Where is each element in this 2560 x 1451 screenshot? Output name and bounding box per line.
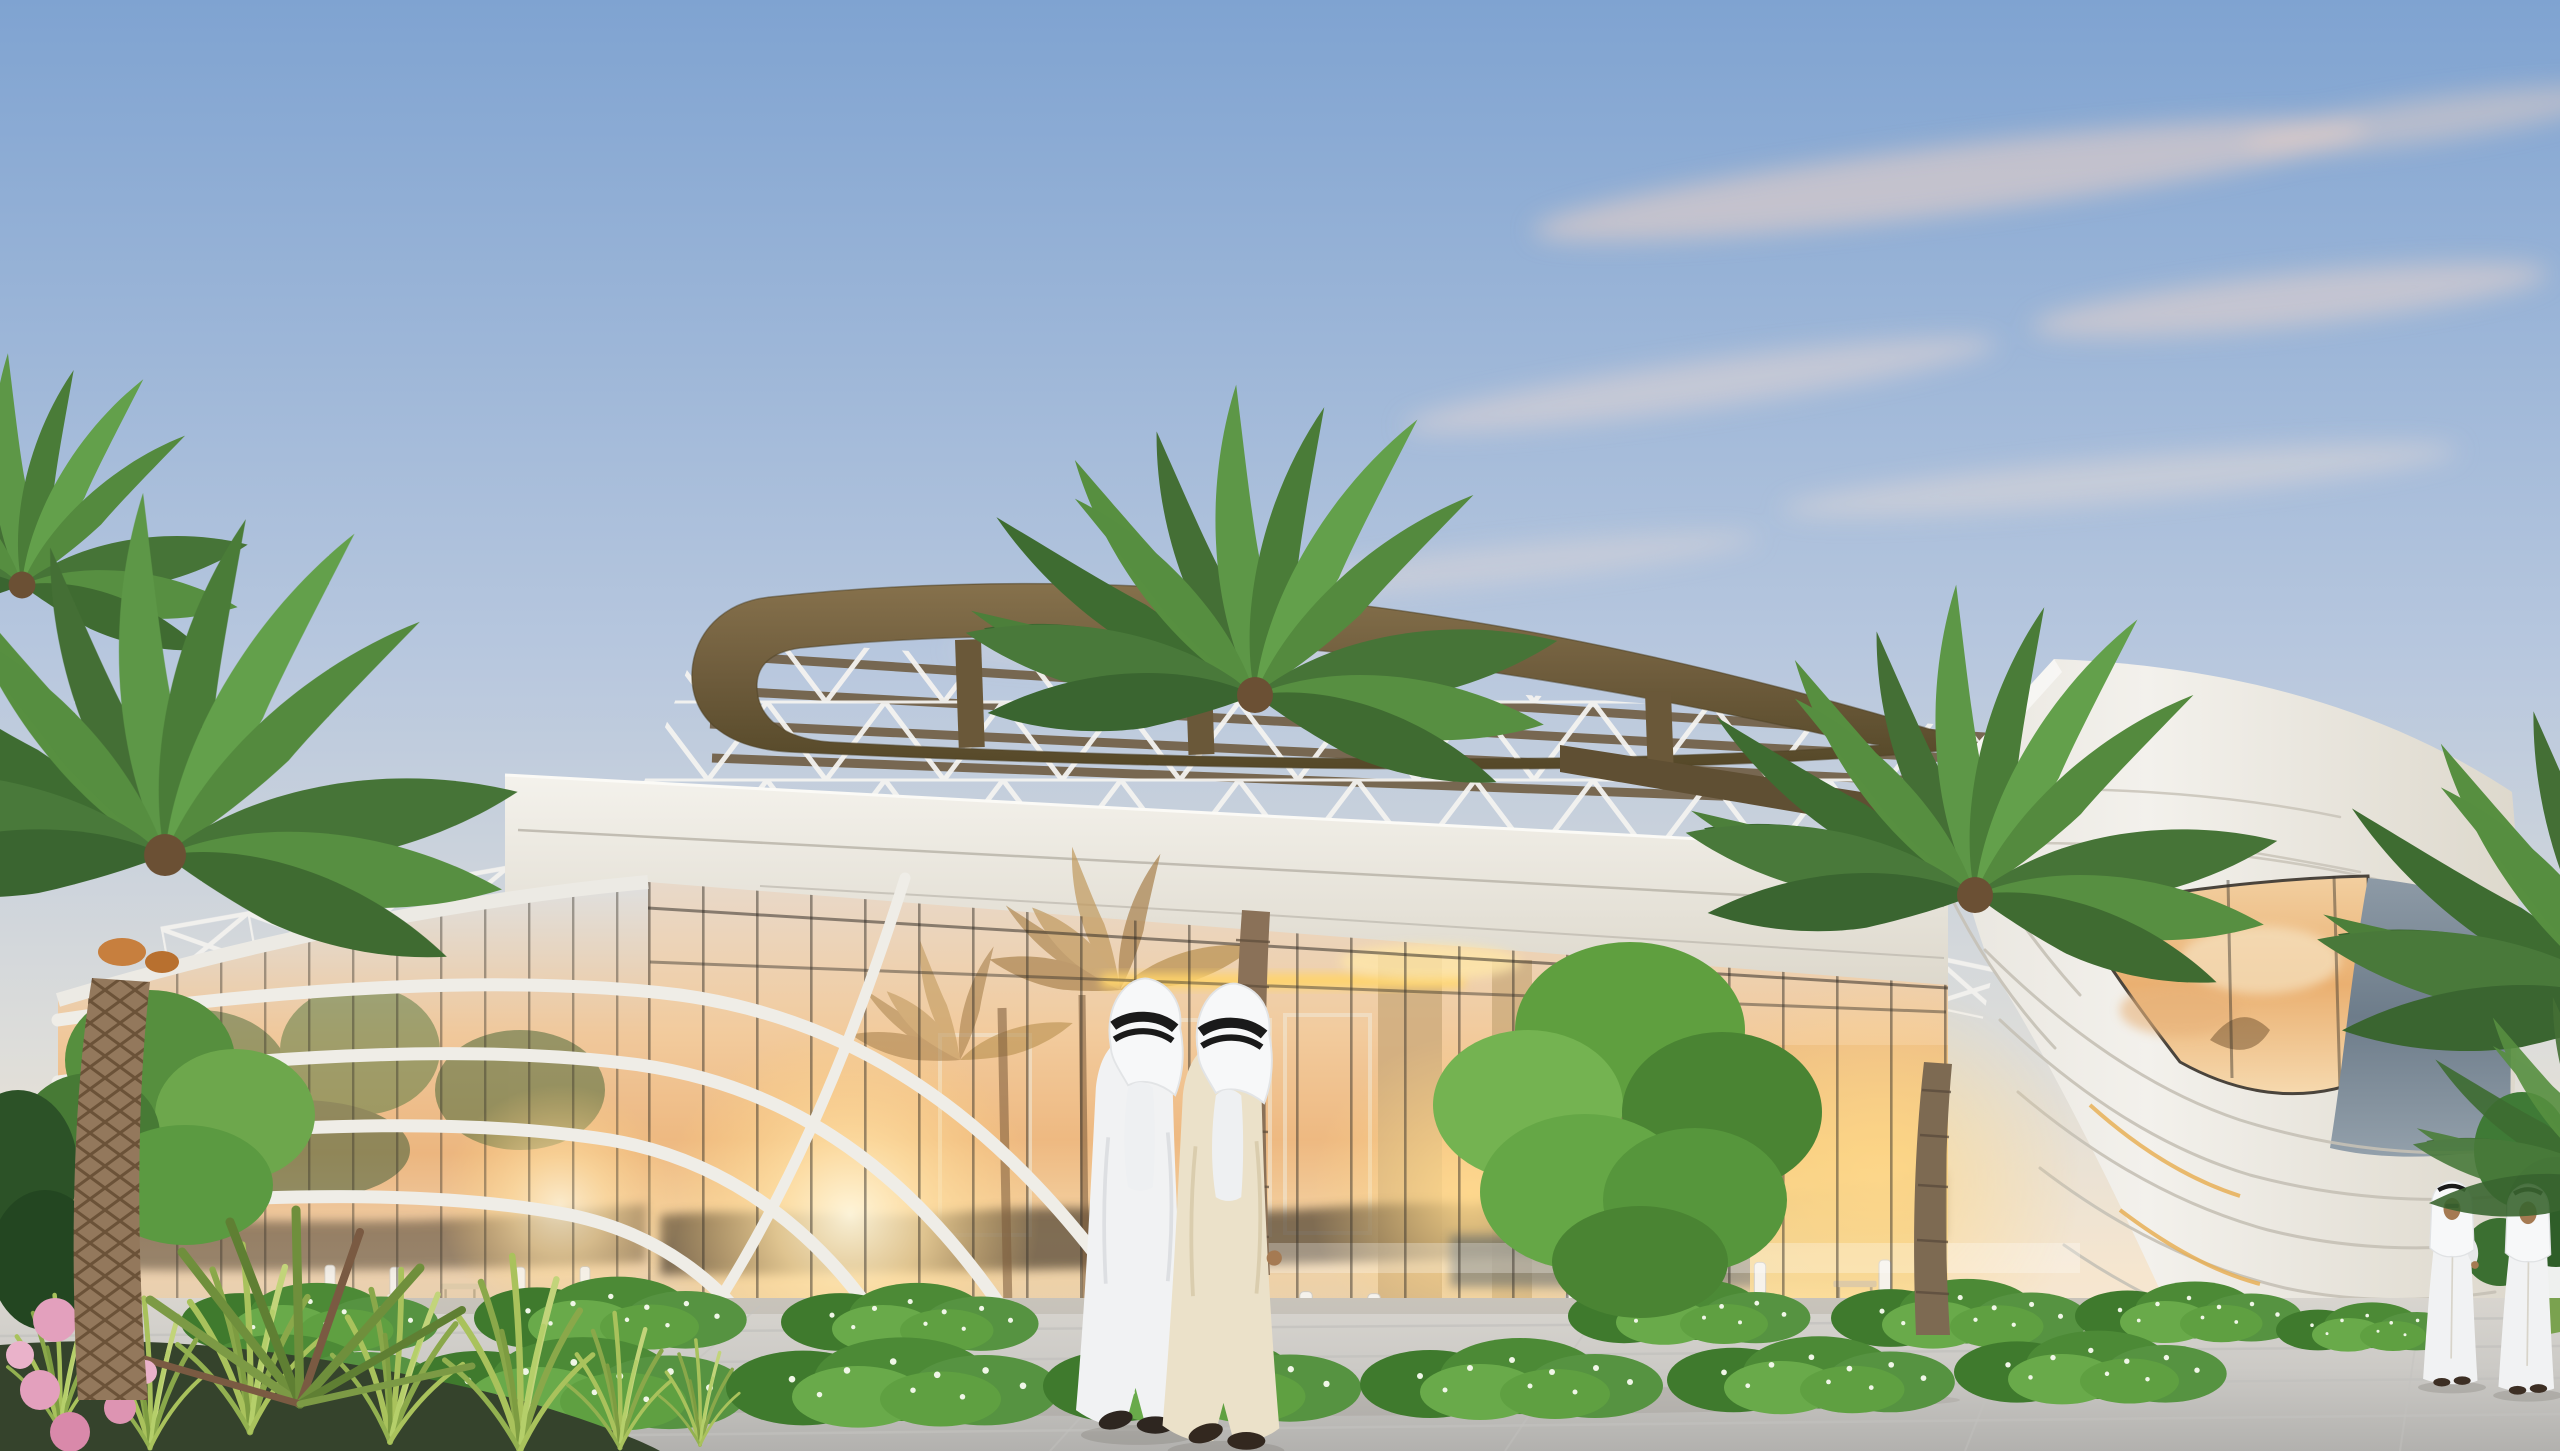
date-cluster — [145, 951, 179, 973]
sandal — [2454, 1376, 2471, 1385]
hand — [2471, 1261, 2479, 1269]
sandal — [2433, 1378, 2450, 1387]
architectural-rendering — [0, 0, 2560, 1451]
sandal — [2509, 1386, 2526, 1395]
sandal — [2530, 1384, 2547, 1393]
hand — [1267, 1250, 1282, 1265]
shoe — [1227, 1432, 1265, 1450]
date-cluster — [98, 938, 146, 966]
